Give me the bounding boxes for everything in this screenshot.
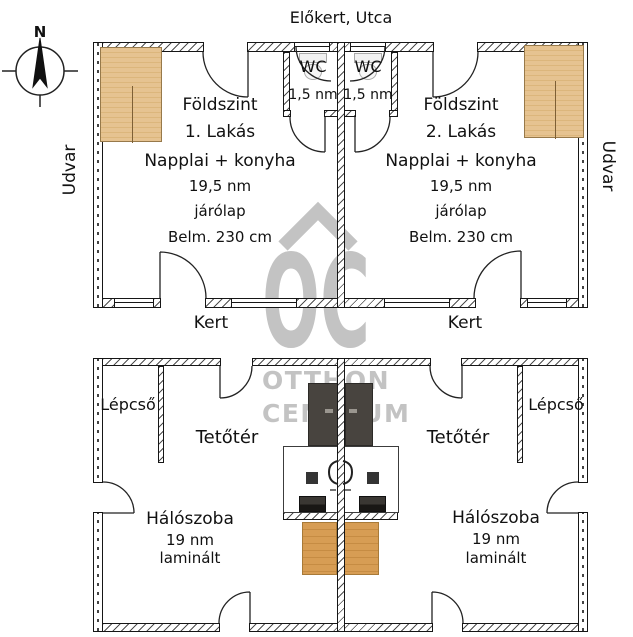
wardrobe-flat1 [100,47,162,142]
garden-label-left: Kert [194,314,228,334]
attic-door-bottom-2 [432,592,463,623]
wc2-area-label: 1,5 nm [343,87,392,103]
flat1-area-label: 19,5 nm [189,178,251,195]
wc2-label: WC [355,58,382,76]
attic-door-top-2 [430,366,462,398]
gf-wc1-window [294,42,330,52]
gf-wc2-window [350,42,386,52]
cabinet-handle [349,409,357,413]
attic1-stairs-label: Lépcső [100,396,156,414]
floor-plan-canvas: OC OTTHON CENTRUM [0,0,633,637]
attic1-area-label: 19 nm [166,532,214,549]
gf-window-south-3 [384,298,450,308]
wardrobe-divider [132,86,133,143]
cabinet-handle [325,409,333,413]
gf-wc2-door [355,117,390,152]
dark-cabinet-flat1 [308,383,338,446]
flat1-room-label: Napplai + konyha [144,152,295,172]
wardrobe-divider [555,81,556,139]
chair-flat1 [299,496,326,512]
gf-garden-door-1 [160,252,206,298]
stool-flat2 [367,472,379,484]
attic-door-top-1 [220,366,252,398]
attic2-stairs-label: Lépcső [528,396,584,414]
flat2-level-label: Földszint [423,96,498,116]
attic2-loft-label: Tetőtér [427,428,490,449]
flat2-ceiling-label: Belm. 230 cm [409,229,513,246]
attic-door-left [103,482,134,513]
attic2-flooring-label: laminált [466,550,527,567]
attic-door-opening-top-1 [220,358,253,366]
attic-stair-partition-1 [158,366,164,463]
dark-cabinet-flat2 [345,383,373,446]
bed-flat1 [302,522,337,575]
attic-door-opening-bottom-2 [432,623,463,632]
gf-window-south-1 [114,298,154,308]
attic-door-bottom-1 [219,592,250,623]
wardrobe-flat2 [524,45,584,138]
garden-label-right: Kert [448,314,482,334]
attic1-flooring-label: laminált [160,550,221,567]
wc1-label: WC [300,58,327,76]
compass-north-label: N [34,24,47,41]
attic-door-opening-right [578,482,588,513]
attic-door-right [547,482,578,513]
gf-wc1-door [290,117,325,152]
gf-wc1-door-opening [290,110,325,117]
flat2-unit-label: 2. Lakás [426,123,496,143]
gf-window-south-2 [231,298,297,308]
wc1-area-label: 1,5 nm [288,87,337,103]
attic1-bedroom-label: Hálószoba [146,510,234,530]
flat2-area-label: 19,5 nm [430,178,492,195]
chair-flat2 [359,496,386,512]
attic2-area-label: 19 nm [472,531,520,548]
bed-flat2 [343,522,379,575]
attic1-loft-label: Tetőtér [196,428,259,449]
gf-garden-door-2 [474,251,521,298]
yard-label-right: Udvar [597,141,617,192]
gf-wall-central [337,42,345,308]
flat1-ceiling-label: Belm. 230 cm [168,229,272,246]
attic-door-opening-top-2 [430,358,462,366]
gf-entry-door-2 [433,52,478,97]
gf-wc2-door-opening [355,110,390,117]
flat1-unit-label: 1. Lakás [185,123,255,143]
flat1-level-label: Földszint [182,96,257,116]
attic-wall-central [337,358,345,632]
attic-door-opening-left [93,482,103,513]
street-label: Előkert, Utca [290,9,393,27]
attic2-bedroom-label: Hálószoba [452,509,540,529]
gf-wc2-partition [391,52,398,117]
flat2-flooring-label: járólap [435,203,486,220]
yard-label-left: Udvar [61,145,81,196]
gf-entry-door-opening-1 [203,42,248,52]
attic-door-opening-bottom-1 [219,623,250,632]
attic-stair-partition-2 [517,366,523,463]
gf-garden-door-opening-2 [475,298,521,308]
gf-garden-door-opening-1 [160,298,206,308]
gf-window-south-4 [527,298,567,308]
gf-wc1-partition [283,52,290,117]
flat2-room-label: Napplai + konyha [385,152,536,172]
gf-entry-door-1 [203,52,248,97]
gf-entry-door-opening-2 [433,42,478,52]
compass-icon [2,38,78,107]
flat1-flooring-label: járólap [194,203,245,220]
stool-flat1 [306,472,318,484]
